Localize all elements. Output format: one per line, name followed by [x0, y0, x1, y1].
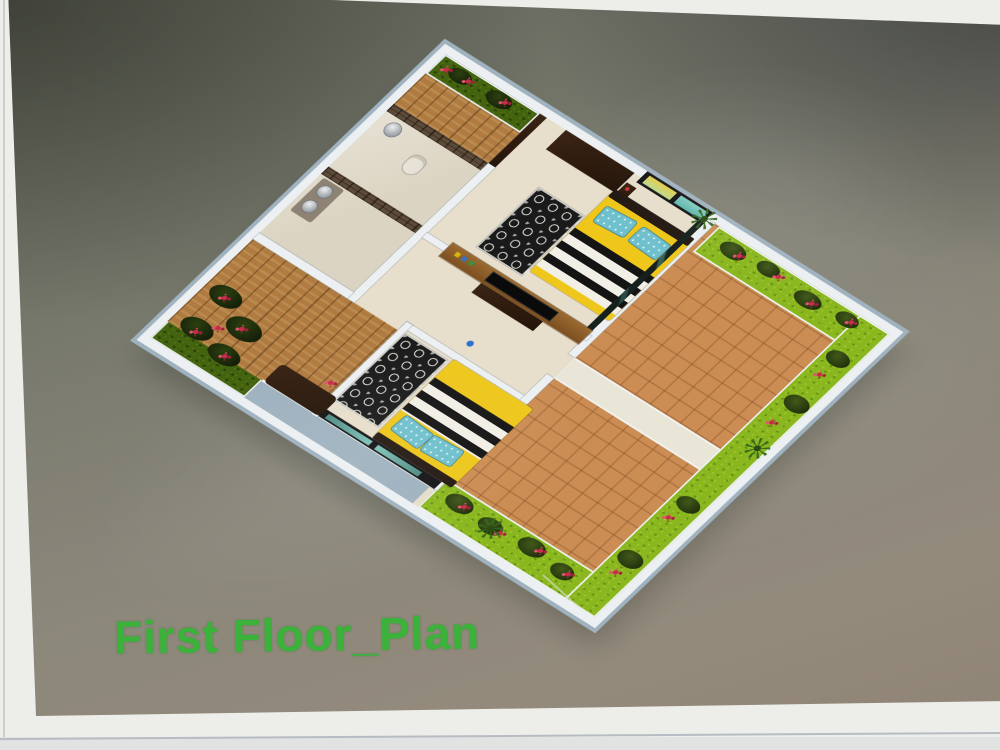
- paper-edge-line: [3, 0, 5, 750]
- printed-render: First Floor_Plan: [0, 0, 1000, 750]
- photo-frame: First Floor_Plan: [0, 0, 1000, 750]
